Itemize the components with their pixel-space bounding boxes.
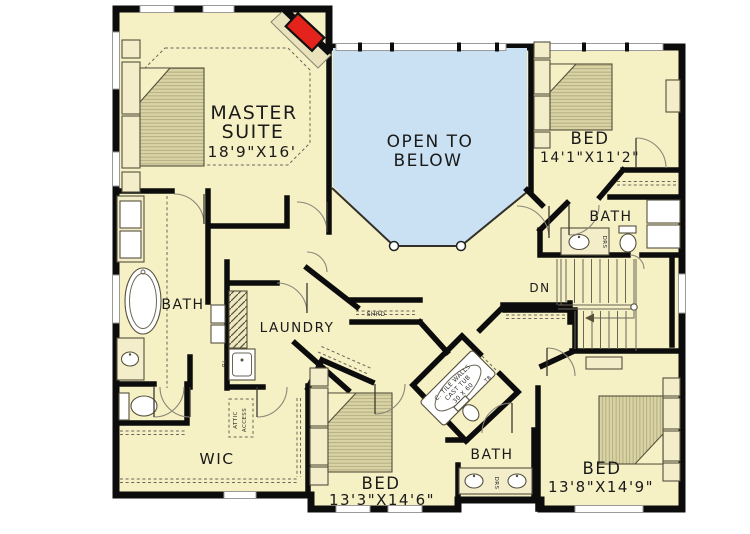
attic-access-label: ACCESS xyxy=(242,408,248,432)
drawers-label: DRS xyxy=(601,236,607,249)
open-below-label: OPEN TO xyxy=(387,132,474,152)
linen-shelf xyxy=(647,200,680,223)
bed-lower-right-dims: 13'8"X14'9" xyxy=(548,478,654,496)
open-below-label: BELOW xyxy=(394,151,463,171)
floor-plan-canvas: MASTER SUITE 18'9"X16' OPEN TO BELOW BED… xyxy=(0,0,750,534)
wic-label: WIC xyxy=(199,450,234,468)
window xyxy=(679,274,686,313)
window xyxy=(140,6,174,13)
window xyxy=(203,6,234,13)
laundry-label: LAUNDRY xyxy=(260,320,335,336)
towel-bar-label: TB xyxy=(220,359,226,367)
toilet xyxy=(620,234,636,252)
laundry-counter xyxy=(229,291,247,348)
railing-post xyxy=(390,242,399,251)
window xyxy=(113,32,120,89)
window xyxy=(113,275,120,323)
bath-upper-right-label: BATH xyxy=(589,209,632,225)
toilet-tank xyxy=(619,226,636,233)
window xyxy=(113,152,120,186)
bed-lower-center-dims: 13'3"X14'6" xyxy=(329,491,435,509)
master-bath-label: BATH xyxy=(161,297,204,313)
toilet-tank xyxy=(119,393,129,420)
window xyxy=(546,44,663,51)
attic-access-label: ATTIC xyxy=(233,411,239,428)
window xyxy=(575,506,643,513)
linen-shelf xyxy=(647,225,680,248)
master-suite-dims: 18'9"X16' xyxy=(207,143,296,161)
oval-tub xyxy=(125,268,161,334)
window xyxy=(224,492,256,499)
bed-upper-right-dims: 14'1"X11'2" xyxy=(540,150,640,166)
drawers-label: DRS xyxy=(493,477,499,490)
master-suite-label: SUITE xyxy=(222,121,285,143)
bed-upper-right-label: BED xyxy=(571,129,610,148)
toilet xyxy=(131,396,157,416)
floor-plan-page: MASTER SUITE 18'9"X16' OPEN TO BELOW BED… xyxy=(0,0,750,534)
stairs-dn-label: DN xyxy=(529,281,550,295)
railing-post xyxy=(457,242,466,251)
bed-lower-right-label: BED xyxy=(583,459,622,478)
bath-lower-label: BATH xyxy=(470,447,513,463)
shelf-rod-label: SHRD xyxy=(367,311,386,318)
